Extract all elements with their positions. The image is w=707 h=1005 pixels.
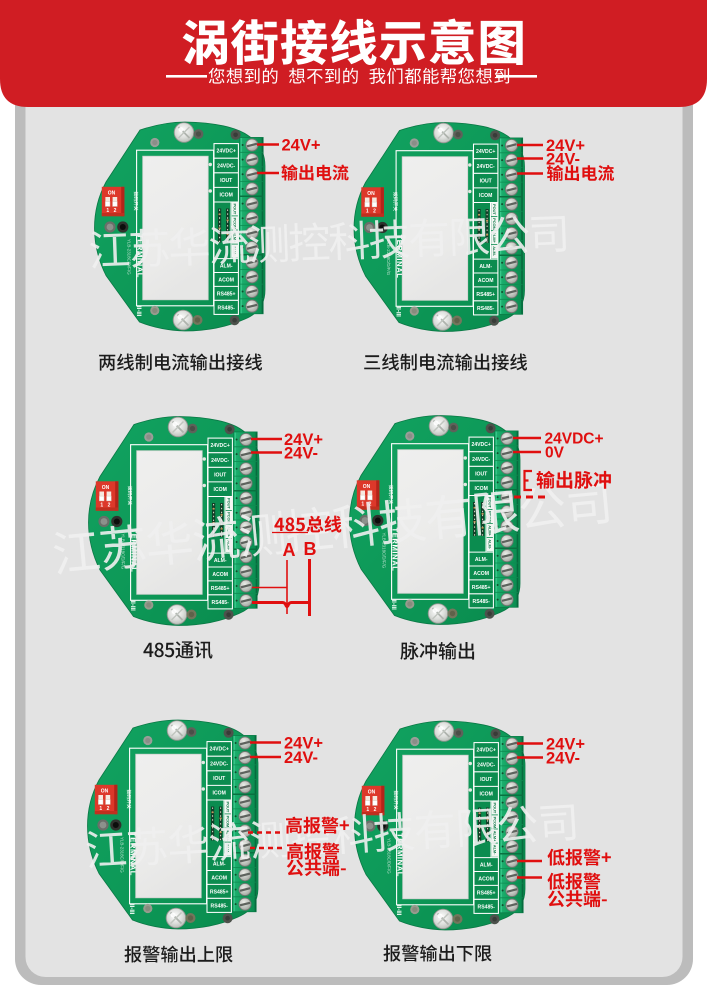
- svg-text:24V+: 24V+: [282, 137, 321, 155]
- svg-text:24V-: 24V-: [284, 445, 318, 463]
- svg-text:B: B: [304, 539, 317, 559]
- svg-text:A: A: [283, 540, 296, 560]
- svg-text:24V-: 24V-: [546, 750, 580, 768]
- svg-text:0V: 0V: [545, 445, 565, 462]
- svg-text:24V-: 24V-: [284, 749, 318, 767]
- svg-text:24V-: 24V-: [546, 151, 580, 169]
